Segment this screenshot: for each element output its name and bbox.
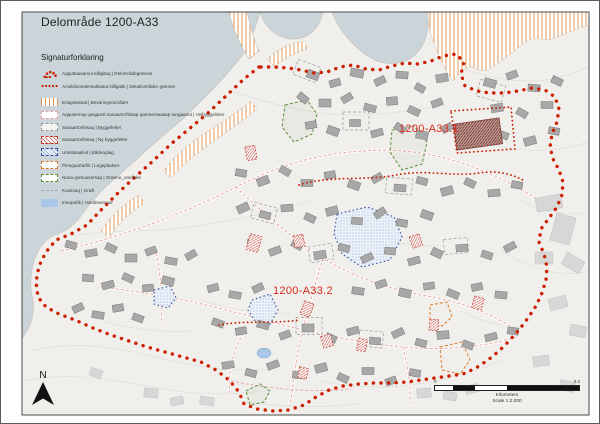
legend-row: Sanaartorfissaq | Ny byggefelter [41,135,256,144]
legend-heading: Signaturforklaring [41,53,256,62]
legend-label: Imeqarfik | Vandreservoir [62,200,113,205]
legend-label: Sanaartorfissaq | Byggefelter [62,125,121,130]
legend-label: Aqquttaasamut killigitaq | Delområdegræn… [62,71,152,76]
north-arrow: N [29,371,57,412]
legend-label: Pinnguartarfiit | Legepladser [62,163,119,168]
page-title: Delområde 1200-A33 [41,15,159,29]
area-label-1200-A33-1: 1200-A33.1 [399,123,459,135]
legend-label: Sanaartorfissaq | Ny byggefelter [62,137,128,142]
legend-row: Imeqarfik | Vandreservoir [41,198,256,207]
scale-bar-segments [434,385,580,391]
scale-bar: 0 0.2 Kilometers Scale 1:2.000 [434,379,580,404]
plan-map-page: Delområde 1200-A33 Signaturforklaring Aq… [0,0,600,424]
area-label-1200-A33-2: 1200-A33.2 [273,285,333,297]
legend-row: Kuussaq | Grøft [41,186,256,195]
scale-end-label: 0.2 [574,379,580,384]
detail-boundary-swatch-icon [41,82,58,90]
playground-swatch-icon [41,161,58,169]
water-reservoir-swatch-icon [41,199,58,207]
legend-row: Annikitsortalersukkatut killigatik | Det… [41,82,256,91]
north-arrow-icon [29,381,57,407]
scale-unit-label: Kilometers [434,393,580,398]
scale-start-label: 0 [434,379,437,384]
legend-row: Sanaartorfissaq | Byggefelter [41,123,256,132]
legend-label: Umiatsaalivit | Bådeoplag [62,150,114,155]
preservation-swatch-icon [41,98,58,106]
legend-label: Annikitsortalersukkatut killigatik | Det… [62,84,175,89]
legend-row: Aqquttaasamut killigitaq | Delområdegræn… [41,69,256,78]
legend-row: Nuna qorsuusersaq | Grønne_områder [41,173,256,182]
scale-ratio-label: Scale 1:2.000 [434,399,580,404]
delomraade-boundary-swatch-icon [41,70,58,78]
north-label: N [29,371,57,381]
boat-storage-swatch-icon [41,148,58,156]
legend-label: Eriagisassat | Bevaringsområder [62,100,128,105]
legend-row: Pinnguartarfiit | Legepladser [41,161,256,170]
legend-row: Aqqusernup qeqqanit sanaartorfissap qarn… [41,110,256,119]
building-field-swatch-icon [41,123,58,131]
legend-label: Aqqusernup qeqqanit sanaartorfissap qarn… [62,112,224,117]
legend-row: Umiatsaalivit | Bådeoplag [41,148,256,157]
ditch-swatch-icon [41,190,58,191]
legend: Signaturforklaring Aqquttaasamut killigi… [41,53,256,211]
legend-row: Eriagisassat | Bevaringsområder [41,98,256,107]
legend-label: Nuna qorsuusersaq | Grønne_områder [62,175,141,180]
new-building-field-swatch-icon [41,136,58,144]
water-reservoir [257,348,271,358]
green-area-swatch-icon [41,174,58,182]
road-building-line-swatch-icon [41,111,58,119]
legend-label: Kuussaq | Grøft [62,188,94,193]
